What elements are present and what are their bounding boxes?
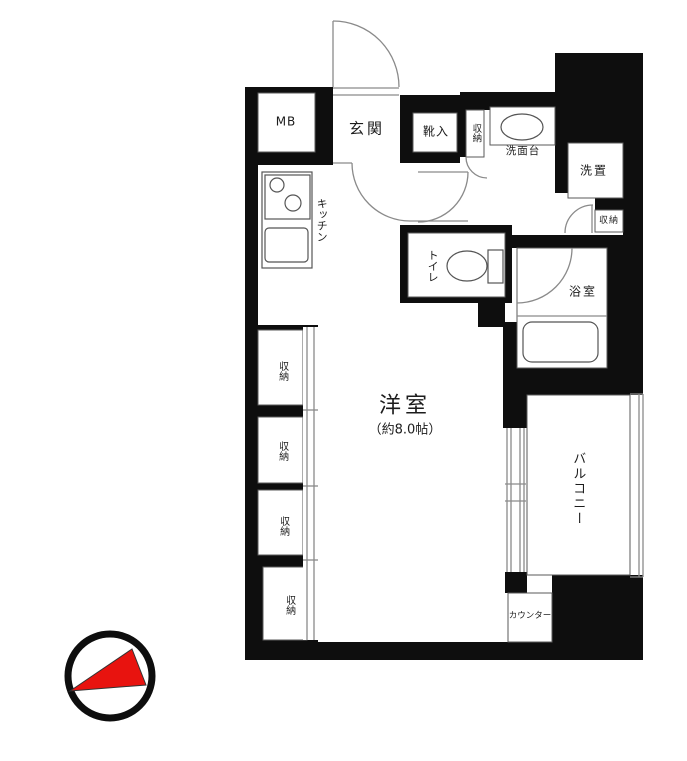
balcony-window (505, 428, 526, 572)
floorplan-graphics (0, 0, 687, 761)
right-storage-door-arc (565, 205, 593, 233)
washbasin-icon (501, 114, 543, 140)
label-main-room-size: （約8.0帖） (369, 424, 442, 439)
floorplan-page: MB 玄関 靴入 収納 洗面台 洗置 収納 キッチン トイレ 浴室 洋室 （約8… (0, 0, 687, 761)
room-door-arc (333, 163, 410, 221)
entrance-storage-door-arc (466, 157, 487, 178)
label-toilet: トイレ (426, 250, 438, 283)
label-main-room: 洋室 (379, 395, 431, 420)
label-right-storage: 収納 (599, 216, 619, 226)
label-entrance-storage: 収納 (470, 124, 481, 143)
washroom-door-arc (410, 172, 468, 222)
label-shoe-box: 靴入 (423, 125, 449, 138)
closet-track-strip (303, 327, 318, 640)
compass-icon (68, 634, 152, 718)
label-closet1: 収納 (276, 361, 287, 381)
label-counter: カウンター (509, 612, 552, 622)
label-closet4: 収納 (283, 595, 294, 615)
label-genkan: 玄関 (349, 121, 385, 138)
label-laundry: 洗置 (580, 164, 608, 177)
bathtub-icon (523, 322, 598, 362)
label-kitchen: キッチン (315, 198, 327, 242)
label-mb: MB (276, 115, 297, 128)
toilet-icon (447, 250, 503, 283)
label-closet3: 収納 (277, 516, 288, 536)
kitchen-counter-icon (262, 172, 312, 268)
label-balcony: バルコニー (570, 452, 585, 527)
label-bathroom: 浴室 (569, 285, 597, 298)
balcony-railing (630, 394, 643, 577)
kitchen-sink-icon (265, 228, 308, 262)
label-closet2: 収納 (276, 441, 287, 461)
label-washstand: 洗面台 (506, 146, 541, 158)
entrance-door-arc (333, 21, 399, 95)
